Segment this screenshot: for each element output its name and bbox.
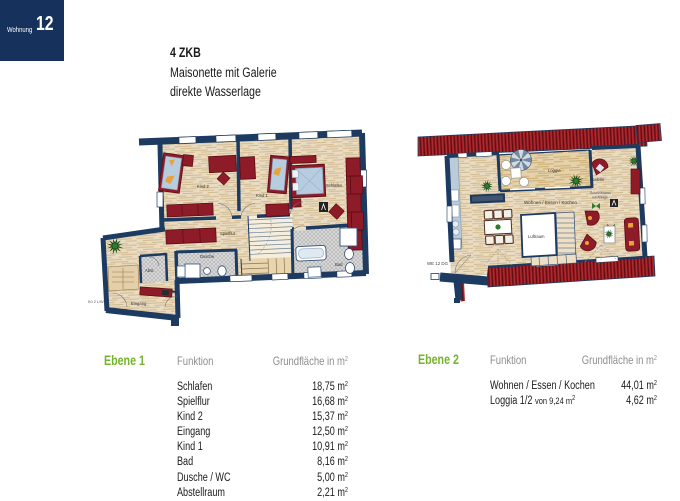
svg-text:Loggia: Loggia [548, 168, 561, 173]
svg-text:mit Ablage: mit Ablage [592, 196, 608, 200]
svg-text:Dusche: Dusche [200, 254, 215, 259]
svg-text:Galerie: Galerie [591, 177, 605, 182]
svg-text:Spielflur: Spielflur [220, 231, 236, 236]
svg-text:Kind 1: Kind 1 [256, 193, 269, 198]
svg-text:Schlafen: Schlafen [326, 183, 343, 188]
svg-text:Kü 2 L/W: Kü 2 L/W [88, 300, 104, 304]
svg-text:Eingang: Eingang [131, 301, 147, 306]
svg-text:Schrankwand: Schrankwand [590, 191, 611, 195]
svg-text:Kind 2: Kind 2 [197, 184, 210, 189]
svg-text:Wohnen / Essen / Kochen: Wohnen / Essen / Kochen [524, 200, 577, 205]
svg-text:Abst.: Abst. [145, 268, 155, 273]
svg-text:Bad: Bad [335, 262, 343, 267]
svg-text:WE 12 DG: WE 12 DG [427, 261, 449, 266]
svg-text:Luftraum: Luftraum [528, 234, 545, 239]
